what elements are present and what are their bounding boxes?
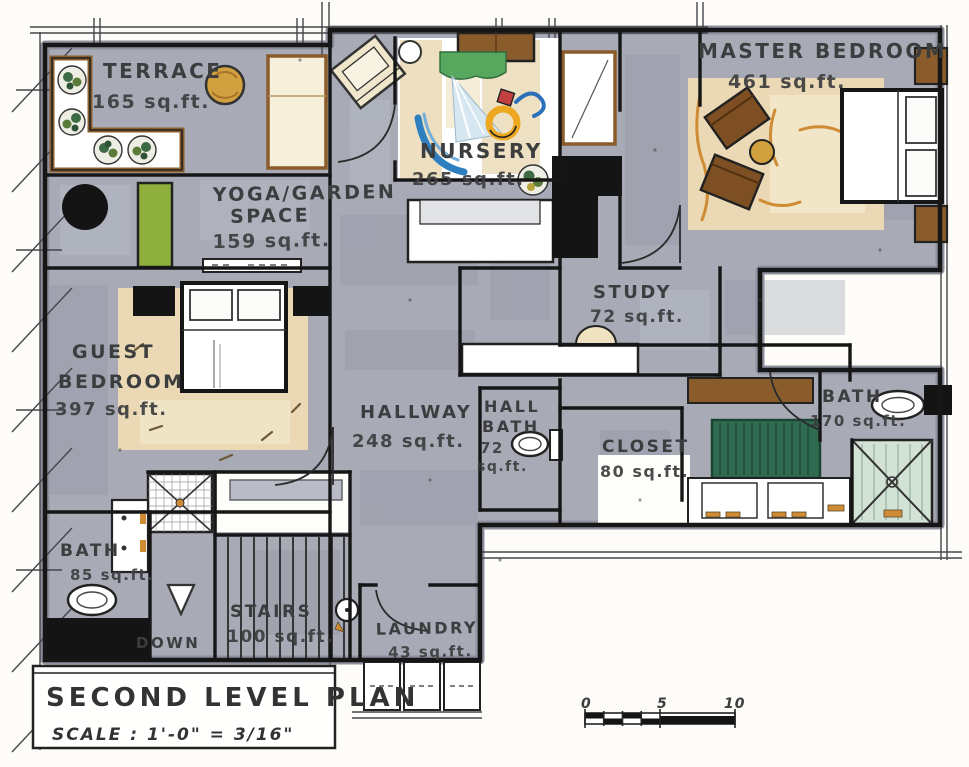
svg-text:461 sq.ft.: 461 sq.ft. bbox=[728, 71, 846, 93]
svg-text:STAIRS: STAIRS bbox=[230, 602, 312, 622]
svg-text:CLOSET: CLOSET bbox=[602, 437, 690, 457]
svg-text:265 sq.ft.: 265 sq.ft. bbox=[412, 169, 525, 190]
svg-text:TERRACE: TERRACE bbox=[103, 59, 222, 83]
svg-text:HALL: HALL bbox=[484, 397, 540, 416]
svg-text:248 sq.ft.: 248 sq.ft. bbox=[352, 431, 465, 452]
floor-plan-drawing: TERRACE 165 sq.ft. YOGA/GARDEN SPACE 159… bbox=[0, 0, 969, 767]
svg-text:165 sq.ft.: 165 sq.ft. bbox=[92, 91, 210, 113]
svg-text:sq.ft.: sq.ft. bbox=[477, 459, 528, 475]
svg-text:100 sq.ft.: 100 sq.ft. bbox=[227, 627, 334, 647]
svg-text:0: 0 bbox=[581, 696, 592, 712]
svg-text:SPACE: SPACE bbox=[230, 204, 310, 227]
svg-text:80 sq.ft.: 80 sq.ft. bbox=[600, 462, 689, 481]
svg-text:BATH: BATH bbox=[482, 417, 540, 436]
title-block: SECOND LEVEL PLAN SCALE : 1'-0" = 3/16" bbox=[33, 666, 419, 748]
svg-text:YOGA/GARDEN: YOGA/GARDEN bbox=[212, 181, 397, 206]
plan-title: SECOND LEVEL PLAN bbox=[46, 683, 419, 713]
scale-bar: 0 5 10 bbox=[581, 696, 745, 728]
svg-text:BATH: BATH bbox=[60, 541, 121, 561]
svg-text:85 sq.ft.: 85 sq.ft. bbox=[70, 566, 154, 584]
master-shower bbox=[852, 440, 932, 524]
yoga-spa-table bbox=[62, 184, 108, 230]
svg-text:DOWN: DOWN bbox=[136, 634, 200, 652]
yoga-mat bbox=[138, 183, 172, 267]
floor-plan-sheet: TERRACE 165 sq.ft. YOGA/GARDEN SPACE 159… bbox=[0, 0, 969, 767]
nursery-closet bbox=[563, 52, 615, 144]
svg-text:GUEST: GUEST bbox=[72, 341, 155, 363]
svg-text:NURSERY: NURSERY bbox=[420, 139, 543, 163]
svg-text:5: 5 bbox=[657, 696, 668, 712]
svg-text:397 sq.ft.: 397 sq.ft. bbox=[55, 399, 168, 420]
svg-text:43 sq.ft.: 43 sq.ft. bbox=[388, 642, 473, 661]
svg-text:170 sq.ft.: 170 sq.ft. bbox=[810, 412, 906, 430]
svg-text:LAUNDRY: LAUNDRY bbox=[376, 618, 479, 639]
svg-text:72 sq.ft.: 72 sq.ft. bbox=[590, 307, 684, 327]
svg-text:72: 72 bbox=[480, 439, 504, 457]
side-table bbox=[399, 41, 421, 63]
svg-text:STUDY: STUDY bbox=[593, 282, 672, 303]
svg-text:HALLWAY: HALLWAY bbox=[360, 402, 472, 423]
svg-text:BATH: BATH bbox=[822, 387, 883, 407]
svg-text:MASTER BEDROOM: MASTER BEDROOM bbox=[698, 39, 947, 63]
svg-text:159 sq.ft.: 159 sq.ft. bbox=[212, 229, 330, 253]
terrace-bench bbox=[268, 56, 326, 168]
guest-shower bbox=[148, 474, 212, 532]
plan-scale: SCALE : 1'-0" = 3/16" bbox=[52, 725, 294, 745]
svg-text:BEDROOM: BEDROOM bbox=[58, 371, 185, 393]
